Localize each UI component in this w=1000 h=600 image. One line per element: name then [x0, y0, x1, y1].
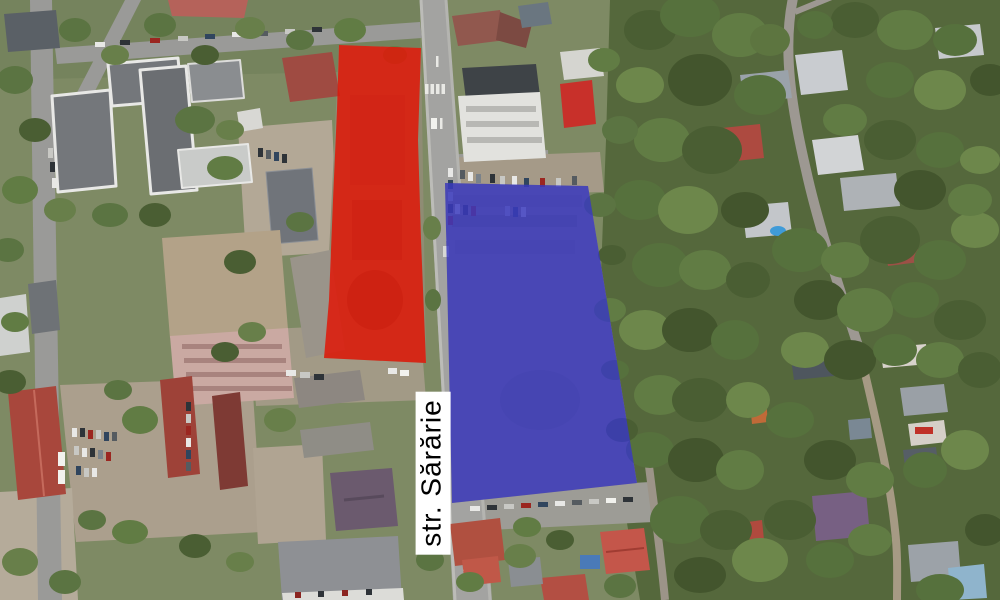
street-name-label: str. Sărărie [416, 391, 451, 554]
hospital-wing-west [52, 90, 116, 192]
aerial-imagery [0, 0, 1000, 600]
building-east-of-hospital [188, 60, 244, 102]
red-roof-building-top [282, 52, 340, 102]
red-pavilion [560, 80, 596, 128]
warehouse-red-west [8, 386, 66, 500]
satellite-map-view[interactable]: str. Sărărie [0, 0, 1000, 600]
apartment-tower-roof [162, 230, 288, 338]
red-zone-overlay[interactable] [324, 45, 426, 363]
